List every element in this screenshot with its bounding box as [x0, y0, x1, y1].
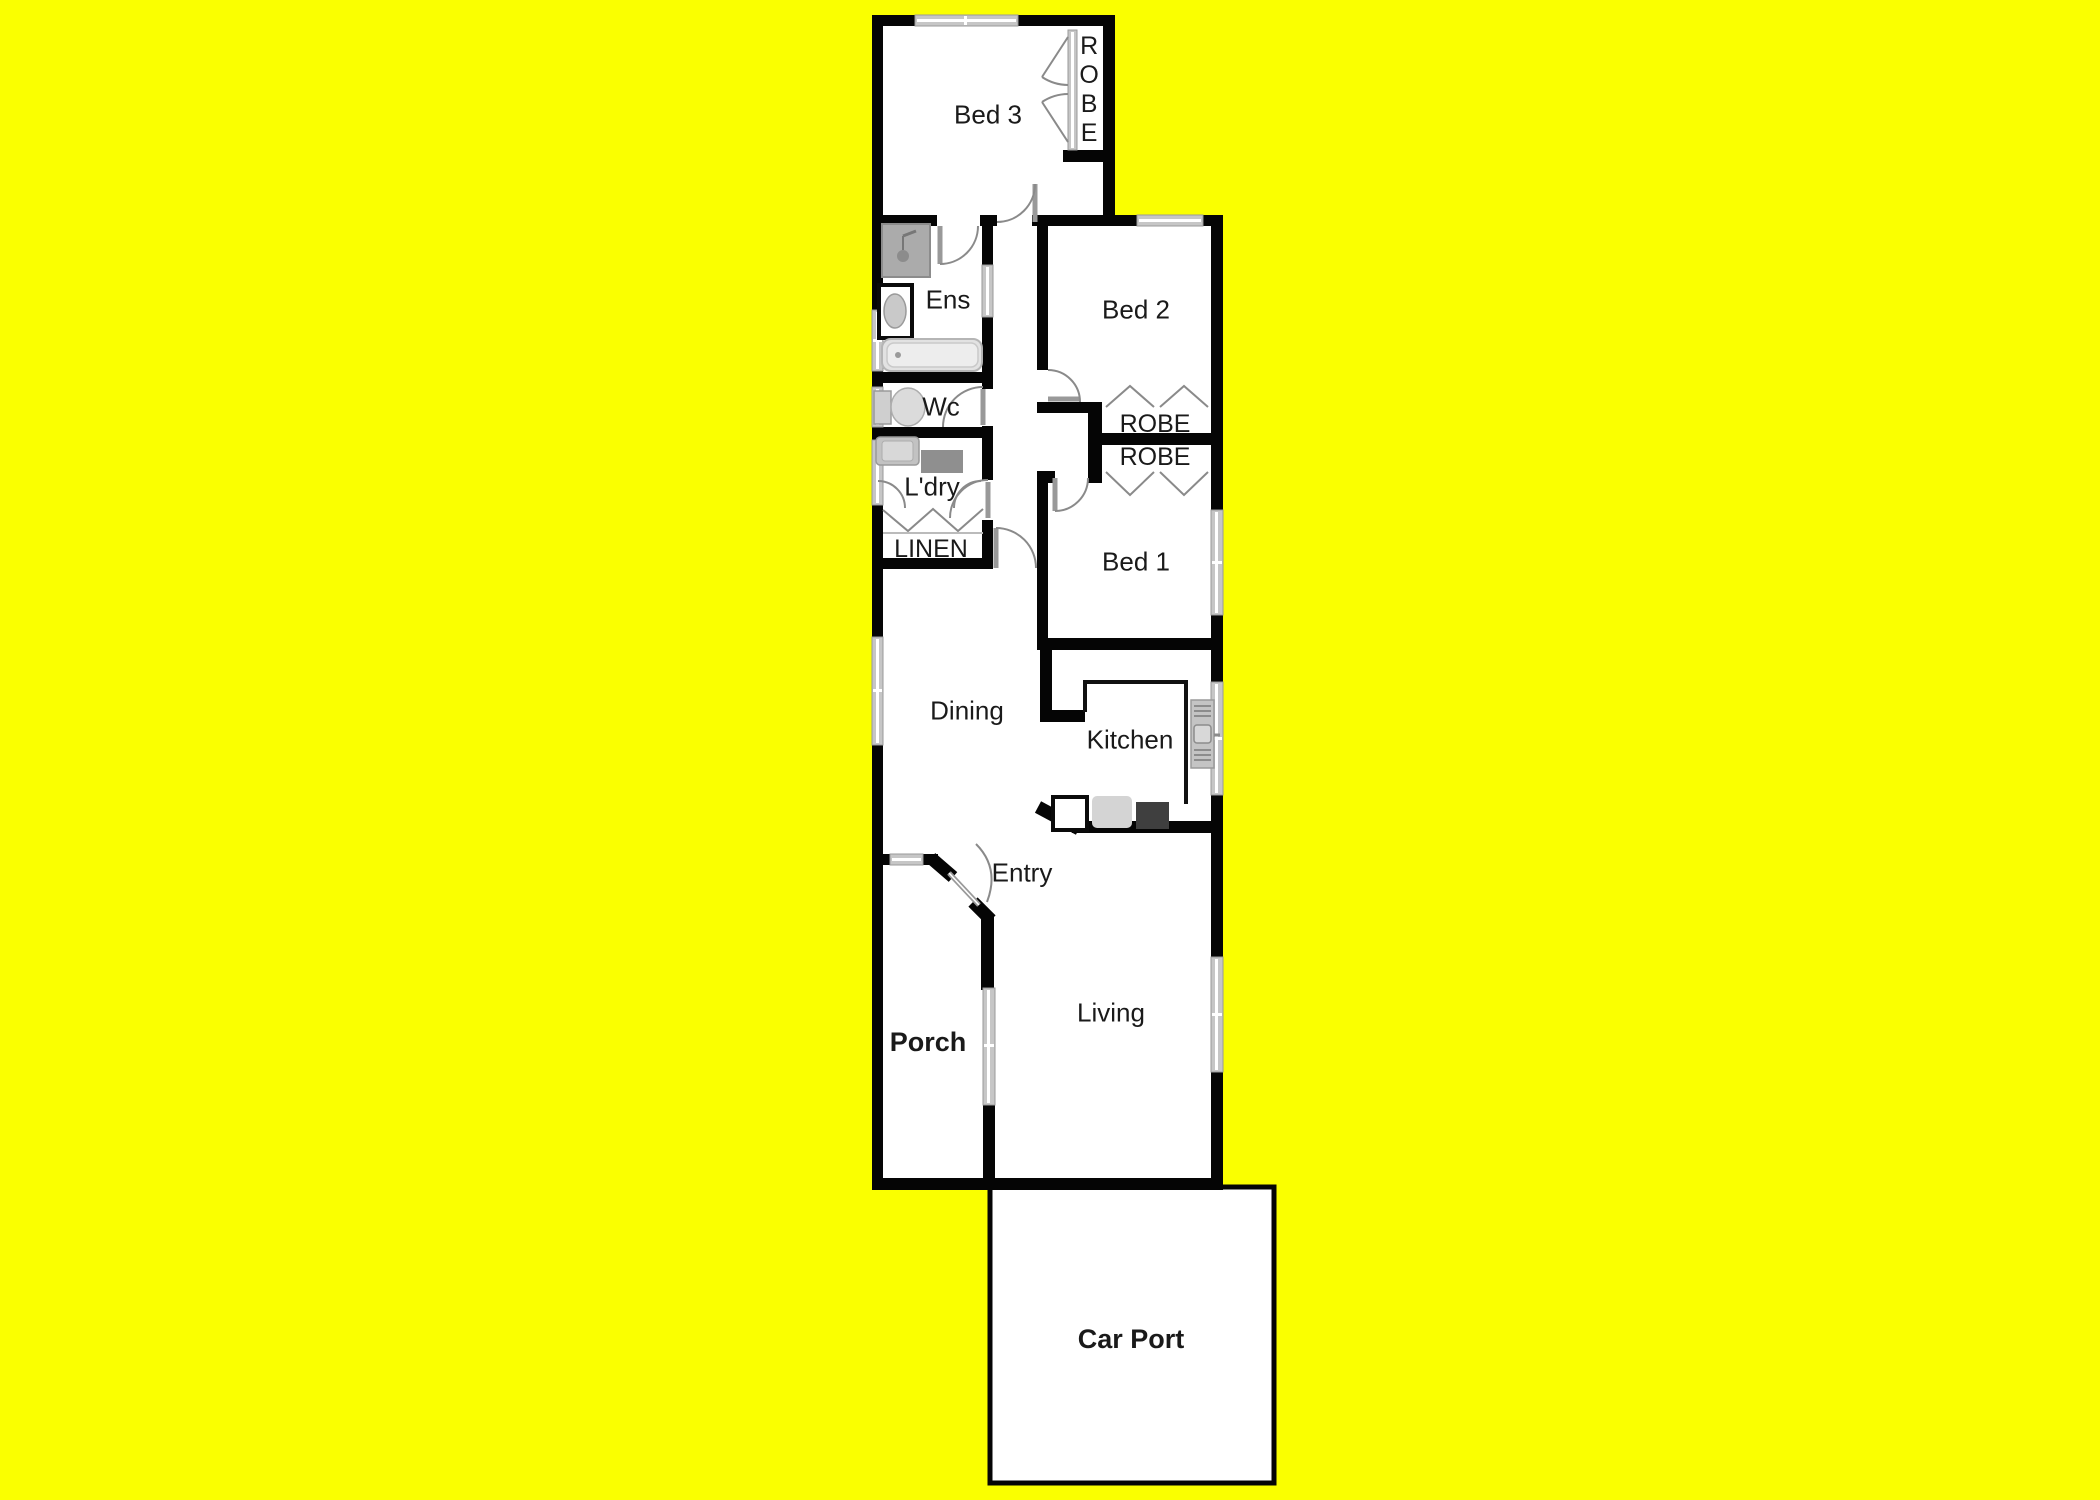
room-label-laundry: L'dry	[904, 473, 960, 500]
floor-plan-drawing	[0, 0, 2100, 1500]
wc-toilet-icon	[874, 388, 925, 426]
room-label-robe-bed1: ROBE	[1120, 444, 1191, 470]
window-entry-top	[890, 854, 923, 865]
room-label-robe-bed2: ROBE	[1120, 411, 1191, 437]
wall-ldry-right-a	[982, 438, 993, 480]
room-label-linen: LINEN	[894, 536, 968, 562]
room-label-bed3: Bed 3	[954, 101, 1022, 128]
floor-plan-page: Bed 3 ROBE Ens Bed 2 Wc ROBE ROBE L'dry …	[0, 0, 2100, 1500]
room-label-wc: Wc	[922, 393, 960, 420]
dishwasher-icon	[1092, 796, 1132, 828]
window-bed1-right	[1211, 510, 1223, 615]
wall-bed1-bottom	[1037, 638, 1223, 650]
cooktop-icon	[1136, 802, 1169, 829]
wall-bottom-outer	[872, 1178, 1223, 1190]
shower-icon	[882, 224, 930, 277]
ensuite-toilet-icon	[879, 285, 912, 338]
wall-bed2-left	[1037, 226, 1048, 370]
wall-bed1-left	[1037, 471, 1048, 650]
bathtub-icon	[882, 339, 982, 371]
wall-mid-b	[980, 215, 997, 226]
room-label-bed2: Bed 2	[1102, 296, 1170, 323]
kitchen-sink-icon	[1053, 797, 1087, 830]
washing-machine-icon	[921, 450, 963, 473]
room-label-carport: Car Port	[1078, 1325, 1185, 1353]
laundry-trough-icon	[876, 437, 919, 465]
wall-dining-kitchen-h	[1040, 710, 1085, 722]
room-label-entry: Entry	[992, 859, 1053, 886]
wall-robe3-bottom	[1063, 150, 1115, 162]
room-label-bed1: Bed 1	[1102, 548, 1170, 575]
bench-edge-left	[1083, 684, 1087, 712]
pocket-door-ens	[982, 265, 993, 317]
window-bed2-top	[1137, 215, 1203, 226]
wall-entry-vertical	[981, 914, 994, 990]
wall-mid-c	[1032, 215, 1137, 226]
bench-edge-right	[1184, 684, 1188, 804]
wall-bed2-bottom	[1037, 402, 1088, 413]
room-label-porch: Porch	[890, 1028, 967, 1056]
room-label-ens: Ens	[926, 286, 971, 313]
wall-wc-right-a	[982, 383, 993, 389]
room-label-robe-bed3: ROBE	[1076, 32, 1102, 148]
wall-porch-divider	[983, 1105, 995, 1190]
window-dining-left	[872, 637, 883, 745]
bench-edge-top	[1083, 680, 1188, 684]
room-label-kitchen: Kitchen	[1087, 726, 1174, 753]
wall-ens-wc	[872, 372, 993, 383]
window-porch-divider	[983, 988, 995, 1105]
room-label-living: Living	[1077, 999, 1145, 1026]
room-label-dining: Dining	[930, 697, 1004, 724]
window-living-right	[1211, 957, 1223, 1072]
wall-bed1-top-b	[1088, 471, 1102, 483]
wall-left-outer	[872, 15, 883, 1190]
window-bed3-top	[915, 15, 1018, 26]
wall-robe3-right	[1103, 15, 1115, 225]
